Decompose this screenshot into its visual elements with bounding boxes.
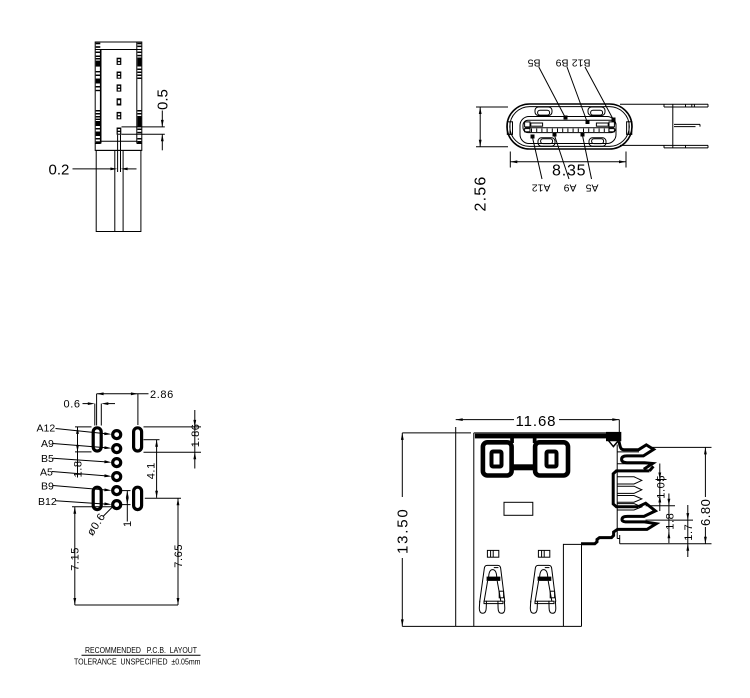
svg-text:11.68: 11.68	[516, 413, 557, 430]
svg-text:1.86: 1.86	[190, 423, 202, 447]
svg-text:0.5: 0.5	[155, 89, 172, 110]
svg-text:B5: B5	[527, 57, 540, 69]
svg-text:2.56: 2.56	[473, 176, 490, 212]
svg-text:A5: A5	[585, 182, 598, 194]
svg-text:A12: A12	[37, 423, 56, 435]
svg-text:1.8: 1.8	[664, 513, 676, 530]
svg-text:7.15: 7.15	[70, 547, 82, 571]
svg-text:B9: B9	[41, 481, 54, 493]
svg-text:8.35: 8.35	[552, 163, 586, 180]
svg-text:1.8: 1.8	[72, 460, 84, 477]
svg-text:A12: A12	[532, 182, 551, 194]
svg-text:0.2: 0.2	[49, 162, 70, 179]
svg-text:B9: B9	[555, 57, 568, 69]
svg-text:B12: B12	[38, 496, 57, 508]
svg-text:1: 1	[122, 520, 134, 527]
svg-text:A9: A9	[41, 438, 54, 450]
svg-text:1.7: 1.7	[683, 524, 695, 541]
svg-text:A5: A5	[40, 467, 53, 479]
svg-text:2.86: 2.86	[150, 389, 174, 401]
svg-text:13.50: 13.50	[395, 507, 412, 554]
svg-text:1.05: 1.05	[656, 475, 668, 499]
svg-text:TOLERANCE UNSPECIFIED ±0.05m: TOLERANCE UNSPECIFIED ±0.05mm	[74, 657, 201, 667]
svg-text:RECOMMENDED P.C.B. LAYOUT: RECOMMENDED P.C.B. LAYOUT	[85, 645, 197, 655]
svg-text:4.1: 4.1	[146, 462, 158, 479]
svg-text:B5: B5	[41, 453, 54, 465]
svg-text:6.80: 6.80	[698, 499, 713, 526]
svg-text:A9: A9	[563, 182, 576, 194]
svg-text:0.6: 0.6	[64, 398, 81, 410]
svg-text:B12: B12	[572, 57, 591, 69]
svg-text:7.65: 7.65	[173, 544, 185, 568]
